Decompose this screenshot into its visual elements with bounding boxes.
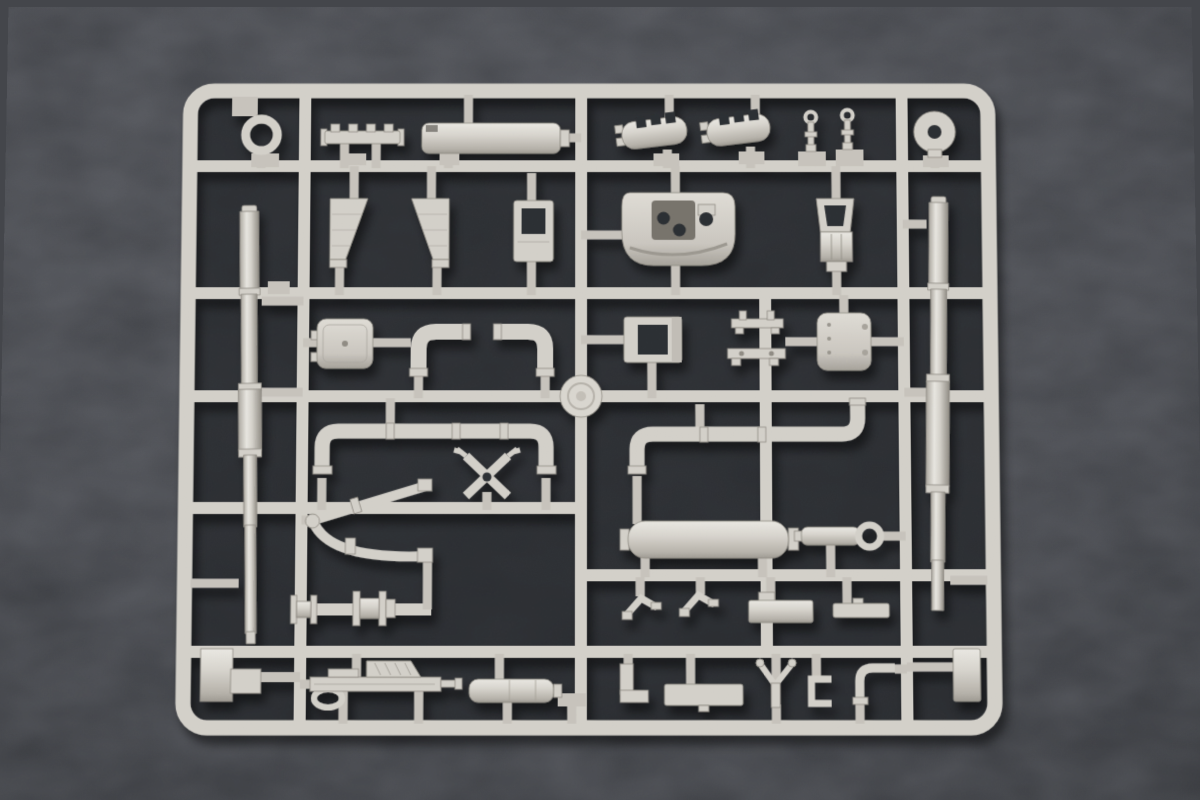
sprue-photo [0, 7, 1200, 800]
photo-canvas [0, 0, 1200, 800]
photo-grain [0, 7, 1200, 800]
sprue-scene [0, 7, 1200, 800]
